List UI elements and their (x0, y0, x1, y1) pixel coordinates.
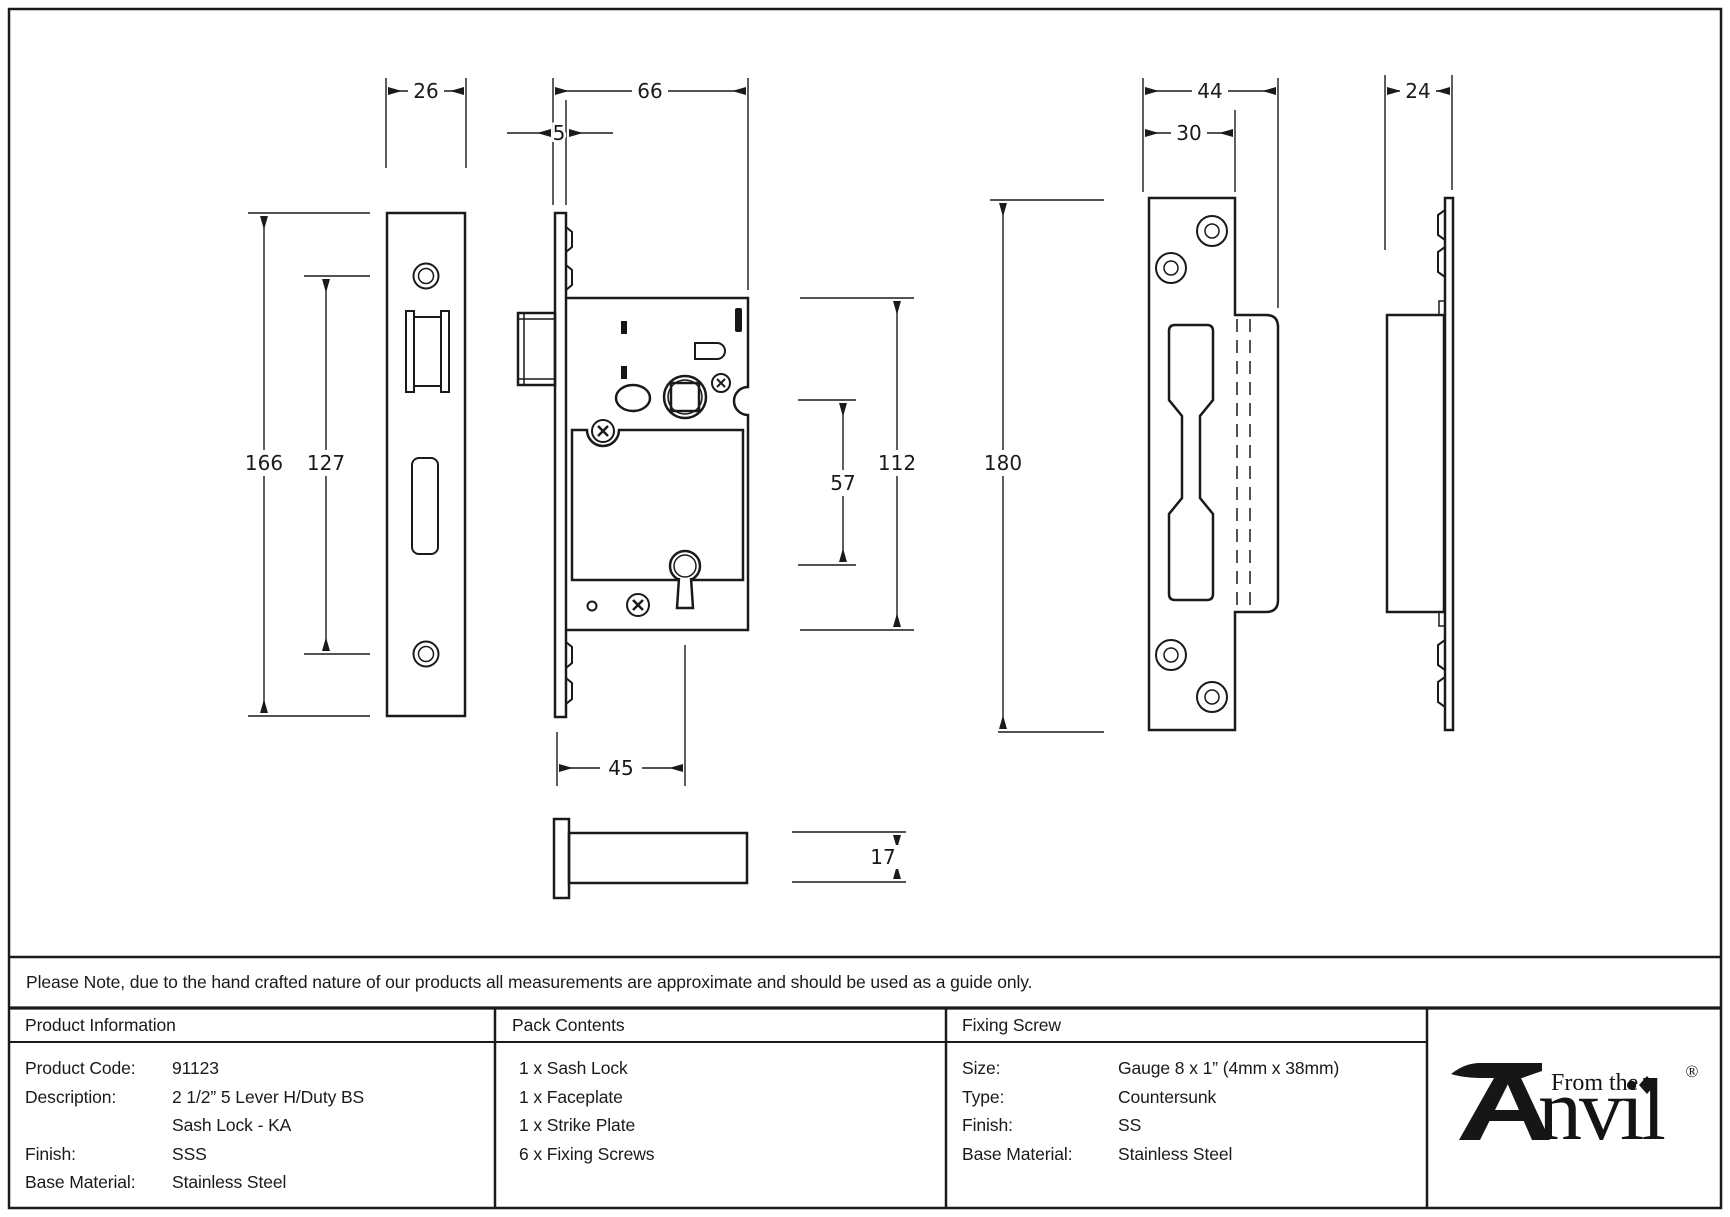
header-product-information: Product Information (25, 1008, 176, 1042)
screw-type-label: Type: (962, 1083, 1004, 1111)
dimension-5: 5 (507, 100, 613, 205)
description-value-2: Sash Lock - KA (172, 1111, 291, 1139)
description-value: 2 1/2” 5 Lever H/Duty BS (172, 1083, 364, 1111)
screw-base-material-value: Stainless Steel (1118, 1140, 1232, 1168)
screw-finish-label: Finish: (962, 1111, 1013, 1139)
dimension-57: 57 (798, 400, 866, 565)
dim-label-24: 24 (1405, 79, 1430, 103)
faceplate-front-view (387, 213, 465, 716)
base-material-label: Base Material: (25, 1168, 135, 1196)
pack-item: 1 x Strike Plate (519, 1111, 635, 1139)
dimension-17: 17 (792, 832, 906, 882)
dimension-127: 127 (302, 276, 370, 654)
spindle-hub (664, 376, 706, 418)
dim-label-26: 26 (413, 79, 438, 103)
dim-label-5: 5 (553, 121, 566, 145)
dimension-30: 30 (1145, 110, 1235, 192)
dim-label-57: 57 (830, 471, 855, 495)
base-material-value: Stainless Steel (172, 1168, 286, 1196)
pack-item: 1 x Sash Lock (519, 1054, 628, 1082)
header-fixing-screw: Fixing Screw (962, 1008, 1061, 1042)
strike-cutout (1169, 325, 1213, 600)
dimension-66: 66 (553, 78, 748, 290)
dimension-180: 180 (976, 200, 1104, 732)
technical-drawing: 26 66 5 166 127 (0, 0, 1730, 1217)
finish-value: SSS (172, 1140, 207, 1168)
lock-body (566, 298, 748, 630)
dim-label-30: 30 (1176, 121, 1201, 145)
faceplate-strip (555, 213, 572, 717)
description-label: Description: (25, 1083, 116, 1111)
dim-label-127: 127 (307, 451, 345, 475)
latch-bolt (518, 313, 555, 385)
measurement-note: Please Note, due to the hand crafted nat… (26, 957, 1032, 1008)
spec-sheet: 26 66 5 166 127 (0, 0, 1730, 1217)
product-code-label: Product Code: (25, 1054, 136, 1082)
dim-label-44: 44 (1197, 79, 1222, 103)
deadbolt-slot (412, 458, 438, 554)
dimension-112: 112 (800, 298, 924, 630)
product-code-value: 91123 (172, 1054, 219, 1082)
sheet-border (8, 9, 1722, 1208)
dimension-24: 24 (1385, 75, 1452, 250)
screw-finish-value: SS (1118, 1111, 1141, 1139)
screw-type-value: Countersunk (1118, 1083, 1216, 1111)
strike-plate-front-view (1149, 198, 1278, 730)
lever-slot (695, 343, 725, 359)
dimension-44: 44 (1143, 78, 1278, 308)
pack-item: 6 x Fixing Screws (519, 1140, 654, 1168)
logo-name: nvil (1538, 1062, 1664, 1159)
screw-head (712, 374, 730, 392)
strike-plate-side-view (1387, 198, 1453, 730)
screw-size-label: Size: (962, 1054, 1000, 1082)
screw-head (627, 594, 649, 616)
header-pack-contents: Pack Contents (512, 1008, 625, 1042)
brand-logo: From the nvil ® (1451, 1062, 1699, 1159)
dim-label-17: 17 (870, 845, 895, 869)
finish-label: Finish: (25, 1140, 76, 1168)
dimension-26: 26 (386, 78, 466, 168)
screw-size-value: Gauge 8 x 1” (4mm x 38mm) (1118, 1054, 1339, 1082)
latch-opening (406, 311, 449, 392)
dim-label-45: 45 (608, 756, 633, 780)
dim-label-166: 166 (245, 451, 283, 475)
deadbolt-side-view (554, 819, 747, 898)
dim-label-112: 112 (878, 451, 916, 475)
dimension-45: 45 (557, 645, 685, 786)
screw-head (592, 420, 614, 442)
pack-item: 1 x Faceplate (519, 1083, 623, 1111)
registered-mark: ® (1686, 1062, 1699, 1081)
dim-label-180: 180 (984, 451, 1022, 475)
screw-base-material-label: Base Material: (962, 1140, 1072, 1168)
dim-label-66: 66 (637, 79, 662, 103)
lock-mechanism-side-view (518, 213, 748, 898)
anvil-icon (1451, 1063, 1542, 1078)
